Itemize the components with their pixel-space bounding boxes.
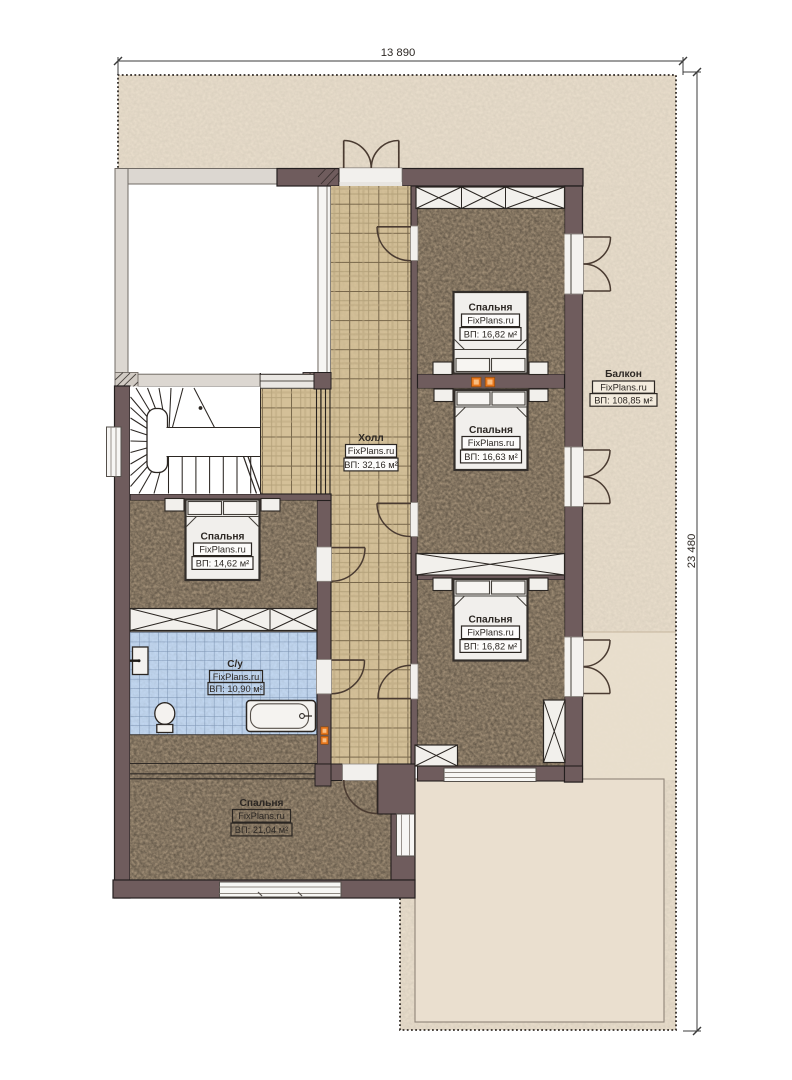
svg-text:Спальня: Спальня xyxy=(239,798,283,809)
svg-text:ВП: 16,63 м²: ВП: 16,63 м² xyxy=(464,452,517,462)
svg-text:ВП: 32,16 м²: ВП: 32,16 м² xyxy=(344,460,397,470)
svg-text:ВП: 14,62 м²: ВП: 14,62 м² xyxy=(196,559,249,569)
svg-text:FixPlans.ru: FixPlans.ru xyxy=(199,545,246,555)
svg-text:ВП: 16,82 м²: ВП: 16,82 м² xyxy=(464,330,517,340)
svg-text:ВП: 21,04 м²: ВП: 21,04 м² xyxy=(235,825,288,835)
svg-text:Балкон: Балкон xyxy=(605,369,642,380)
svg-text:23 480: 23 480 xyxy=(686,534,698,569)
svg-text:FixPlans.ru: FixPlans.ru xyxy=(467,316,514,326)
svg-text:13 890: 13 890 xyxy=(381,47,416,59)
svg-text:FixPlans.ru: FixPlans.ru xyxy=(213,672,260,682)
svg-text:Спальня: Спальня xyxy=(469,425,513,436)
svg-text:ВП: 16,82 м²: ВП: 16,82 м² xyxy=(464,642,517,652)
svg-text:FixPlans.ru: FixPlans.ru xyxy=(600,383,647,393)
svg-text:FixPlans.ru: FixPlans.ru xyxy=(348,446,395,456)
svg-text:FixPlans.ru: FixPlans.ru xyxy=(467,628,514,638)
svg-text:FixPlans.ru: FixPlans.ru xyxy=(468,438,515,448)
svg-text:Спальня: Спальня xyxy=(468,303,512,314)
svg-text:ВП: 10,90 м²: ВП: 10,90 м² xyxy=(209,684,262,694)
svg-text:Спальня: Спальня xyxy=(468,615,512,626)
svg-text:Холл: Холл xyxy=(358,433,384,444)
svg-text:С/у: С/у xyxy=(227,659,243,670)
svg-text:FixPlans.ru: FixPlans.ru xyxy=(238,811,285,821)
svg-text:ВП: 108,85 м²: ВП: 108,85 м² xyxy=(594,395,653,405)
svg-text:Спальня: Спальня xyxy=(200,532,244,543)
